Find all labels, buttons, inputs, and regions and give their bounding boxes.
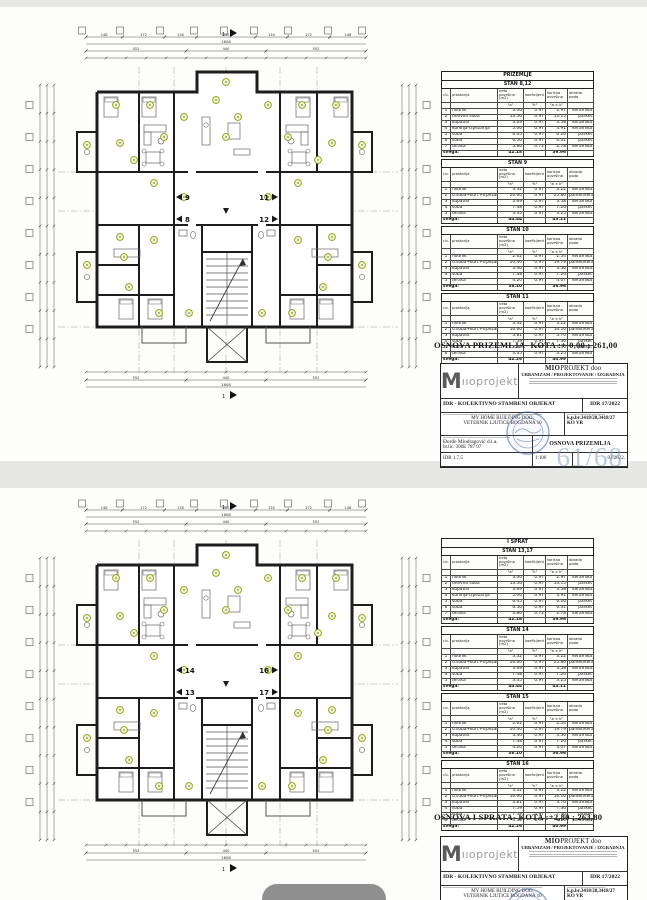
room-number-marker	[295, 653, 302, 660]
room-number-marker	[359, 615, 366, 622]
room-number-marker	[117, 140, 124, 147]
room-number-marker	[84, 142, 91, 149]
dimension-label: 440	[223, 376, 231, 380]
room-number-marker	[359, 262, 366, 269]
area-tables-ground: PRIZEMLJESTAN 8,12r.b.prostorijaneto pov…	[441, 71, 593, 366]
room-row: 2d.soba+kuh.+trpezarija16.600.9716.10par…	[442, 328, 594, 334]
company-logo: Mııoprojekt	[441, 364, 519, 398]
apartment-title: STAN 14	[442, 626, 594, 635]
room-number-marker	[84, 735, 91, 742]
room-number-marker	[213, 570, 220, 577]
room-number-marker	[181, 587, 188, 594]
room-number-marker	[223, 79, 230, 86]
dimension-label: 148	[344, 506, 352, 510]
room-number-marker	[151, 653, 158, 660]
floor-plan-drawing: 1481721302401301721481608552440552552440…	[24, 25, 432, 407]
room-number-marker	[121, 727, 128, 734]
room-number-marker	[359, 142, 366, 149]
apartment-area-table: STAN 14r.b.prostorijaneto površina (m2)k…	[441, 626, 594, 691]
room-number-marker	[325, 727, 332, 734]
floor-plan-first: 1481721302401301721481608552440552552440…	[24, 498, 432, 880]
dimension-label: 552	[313, 47, 320, 51]
svg-text:1: 1	[222, 394, 225, 400]
room-number-marker	[186, 783, 193, 790]
room-number-marker	[265, 575, 272, 582]
room-number-marker	[181, 114, 188, 121]
room-number-marker	[126, 757, 133, 764]
room-number-marker	[186, 310, 193, 317]
drawing-viewer: 1481721302401301721481608552440552552440…	[0, 0, 647, 900]
room-row: 2d.soba+kuh.+trpezarija16.600.9716.10par…	[442, 795, 594, 801]
total-row: svega:42.1839.96	[442, 617, 594, 623]
dimension-label: 172	[305, 33, 312, 37]
room-number-marker	[84, 615, 91, 622]
designer: Đorđe Miodragović d.i.a. br.lic. 300E 78…	[441, 436, 533, 452]
dimension-total: 1608	[221, 512, 231, 517]
dimension-label: 552	[313, 520, 320, 524]
svg-text:1: 1	[222, 867, 225, 873]
room-number-marker	[315, 157, 322, 164]
total-row: svega:38.1036.96	[442, 284, 594, 290]
project-number: IDR 17/2022	[583, 872, 627, 885]
floor-header: PRIZEMLJE	[442, 72, 594, 81]
room-number-marker	[320, 284, 327, 291]
room-number-marker	[161, 134, 168, 141]
dimension-label: 440	[223, 520, 231, 524]
apartment-number: 11	[259, 194, 269, 202]
room-number-marker	[131, 157, 138, 164]
apartment-area-table: PRIZEMLJESTAN 8,12r.b.prostorijaneto pov…	[441, 71, 594, 157]
total-row: svega:42.1839.96	[442, 150, 594, 156]
room-number-marker	[320, 757, 327, 764]
floor-plan-drawing: 1481721302401301721481608552440552552440…	[24, 498, 432, 880]
drawing-date: 03.2022.	[573, 453, 627, 466]
apartment-area-table: I SPRATSTAN 13,17r.b.prostorijaneto povr…	[441, 538, 594, 624]
section-mark-label: 1	[222, 32, 225, 38]
project-number: IDR 17/2022	[583, 399, 627, 412]
room-number-marker	[259, 310, 266, 317]
apartment-area-table: STAN 10r.b.prostorijaneto površina (m2)k…	[441, 226, 594, 291]
room-number-marker	[117, 613, 124, 620]
drawing-title: OSNOVA PRIZEMLJA	[533, 436, 627, 452]
room-number-marker	[223, 552, 230, 559]
company-logo: Mııoprojekt	[441, 837, 519, 871]
apartment-title: STAN 11	[442, 293, 594, 302]
room-number-marker	[151, 180, 158, 187]
section-mark-label: 1	[222, 505, 225, 511]
dimension-label: 172	[140, 33, 147, 37]
room-number-marker	[84, 262, 91, 269]
total-row: svega:42.2640.99	[442, 824, 594, 830]
room-number-marker	[117, 707, 124, 714]
company-info: MIOPROJEKT doo URBANIZAM / PROJEKTOVANJE…	[519, 837, 627, 871]
room-number-marker	[147, 575, 154, 582]
room-number-marker	[329, 140, 336, 147]
room-number-marker	[161, 607, 168, 614]
room-number-marker	[299, 102, 306, 109]
room-number-marker	[223, 134, 230, 141]
parcel: k.p.br.3418/28,3418/27 KO VR	[565, 886, 627, 900]
room-number-marker	[329, 234, 336, 241]
room-number-marker	[285, 134, 292, 141]
room-number-marker	[151, 237, 158, 244]
total-row: svega:44.4443.11	[442, 217, 594, 223]
dimension-label: 130	[268, 506, 276, 510]
floor-header: I SPRAT	[442, 539, 594, 548]
logo-m-glyph: M	[441, 371, 462, 392]
room-row: 2d.soba+kuh.+trpezarija20.400.9719.79par…	[442, 728, 594, 734]
room-number-marker	[289, 783, 296, 790]
plan-caption: OSNOVA I SPRATA- KOTA :+2,80 ; 263,80	[434, 812, 644, 822]
apartment-area-table: STAN 9r.b.prostorijaneto površina (m2)ko…	[441, 159, 594, 224]
dimension-label: 552	[133, 849, 140, 853]
apartment-title: STAN 9	[442, 159, 594, 168]
dimension-label: 148	[101, 33, 109, 37]
company-info: MIOPROJEKT doo URBANIZAM / PROJEKTOVANJE…	[519, 364, 627, 398]
room-number-marker	[235, 114, 242, 121]
dimension-label: 148	[344, 33, 352, 37]
apartment-number: 13	[185, 689, 195, 697]
dimension-label: 130	[177, 33, 185, 37]
room-number-marker	[113, 575, 120, 582]
room-number-marker	[151, 710, 158, 717]
doc-number: IDR 1.7.5	[441, 453, 533, 466]
room-number-marker	[285, 607, 292, 614]
dimension-total: 1608	[221, 39, 231, 44]
room-number-marker	[333, 102, 340, 109]
title-block: Mııoprojekt MIOPROJEKT doo URBANIZAM / P…	[440, 836, 628, 900]
apartment-number: 9	[185, 194, 190, 202]
sheet-first-floor: 1481721302401301721481608552440552552440…	[0, 488, 647, 900]
dimension-label: 440	[223, 47, 231, 51]
apartment-number: 16	[259, 667, 269, 675]
apartment-area-table: STAN 11r.b.prostorijaneto površina (m2)k…	[441, 293, 594, 364]
dimension-label: 552	[313, 849, 320, 853]
investor: MY HOME BUILDING DOO, VETERNIK LJUTICE B…	[441, 413, 565, 435]
dimension-label: 552	[133, 376, 140, 380]
room-row: 2d.soba+kuh.+trpezarija20.400.9719.79par…	[442, 261, 594, 267]
room-number-marker	[156, 310, 163, 317]
investor: MY HOME BUILDING DOO, VETERNIK LJUTICE B…	[441, 886, 565, 900]
room-row: 2d.soba+kuh.+trpezarija26.600.9725.80par…	[442, 660, 594, 666]
room-number-marker	[117, 234, 124, 241]
room-number-marker	[295, 237, 302, 244]
project-name: IDR - KOLEKTIVNO STAMBENI OBJEKAT	[441, 399, 583, 412]
dimension-label: 148	[101, 506, 109, 510]
dimension-total: 1608	[221, 382, 231, 387]
dimension-label: 130	[268, 33, 276, 37]
room-number-marker	[126, 284, 133, 291]
room-number-marker	[315, 630, 322, 637]
dimension-label: 172	[305, 506, 312, 510]
apartment-title: STAN 10	[442, 226, 594, 235]
room-number-marker	[113, 102, 120, 109]
dimension-label: 172	[140, 506, 147, 510]
total-row: svega:44.4443.11	[442, 684, 594, 690]
dimension-label: 552	[133, 47, 140, 51]
apartment-title: STAN 15	[442, 693, 594, 702]
plan-caption: OSNOVA PRIZEMLJA- KOTA :+-0,00 ; 261,00	[434, 340, 644, 350]
apartment-area-table: STAN 15r.b.prostorijaneto površina (m2)k…	[441, 693, 594, 758]
room-number-marker	[147, 102, 154, 109]
apartment-number: 14	[185, 667, 195, 675]
dimension-total: 1608	[221, 855, 231, 860]
dimension-label: 440	[223, 849, 231, 853]
total-row: svega:38.1036.96	[442, 751, 594, 757]
room-number-marker	[156, 783, 163, 790]
apartment-title: STAN 13,17	[442, 547, 594, 556]
apartment-number: 8	[185, 216, 190, 224]
room-number-marker	[213, 97, 220, 104]
floor-plan-ground: 1481721302401301721481608552440552552440…	[24, 25, 432, 407]
room-number-marker	[295, 710, 302, 717]
room-number-marker	[325, 254, 332, 261]
logo-m-glyph: M	[441, 844, 462, 865]
drawing-scale: 1:100	[533, 453, 573, 466]
project-name: IDR - KOLEKTIVNO STAMBENI OBJEKAT	[441, 872, 583, 885]
dimension-label: 552	[133, 520, 140, 524]
room-number-marker	[223, 607, 230, 614]
apartment-title: STAN 16	[442, 760, 594, 769]
apartment-number: 17	[259, 689, 269, 697]
room-row: 2d.soba+kuh.+trpezarija26.600.9725.80par…	[442, 193, 594, 199]
room-number-marker	[359, 735, 366, 742]
room-number-marker	[299, 575, 306, 582]
room-number-marker	[265, 102, 272, 109]
room-number-marker	[121, 254, 128, 261]
bottom-overlay-pill[interactable]	[262, 884, 386, 900]
room-number-marker	[259, 783, 266, 790]
apartment-number: 12	[259, 216, 269, 224]
room-number-marker	[329, 613, 336, 620]
room-number-marker	[235, 587, 242, 594]
dimension-label: 130	[177, 506, 185, 510]
parcel: k.p.br.3418/28,3418/27 KO VR	[565, 413, 627, 435]
room-number-marker	[329, 707, 336, 714]
room-number-marker	[131, 630, 138, 637]
sheet-ground-floor: 1481721302401301721481608552440552552440…	[0, 7, 647, 461]
apartment-title: STAN 8,12	[442, 80, 594, 89]
room-number-marker	[333, 575, 340, 582]
room-number-marker	[289, 310, 296, 317]
room-number-marker	[295, 180, 302, 187]
area-tables-first: I SPRATSTAN 13,17r.b.prostorijaneto povr…	[441, 538, 593, 833]
dimension-label: 552	[313, 376, 320, 380]
title-block: Mııoprojekt MIOPROJEKT doo URBANIZAM / P…	[440, 363, 628, 468]
